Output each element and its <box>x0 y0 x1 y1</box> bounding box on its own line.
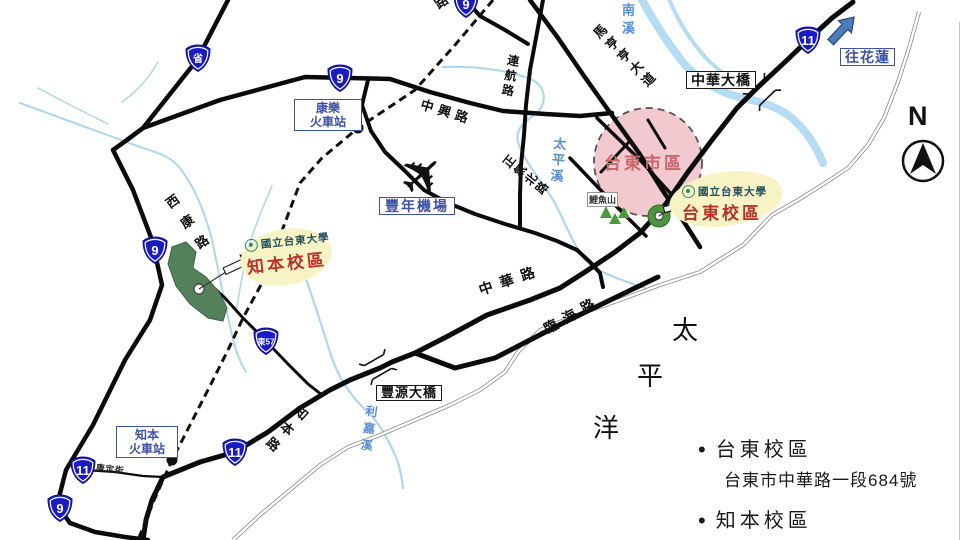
kangle-station-line2: 火車站 <box>299 115 357 129</box>
to-hualien-label: 往花蓮 <box>840 48 895 66</box>
bullet-icon: • <box>698 438 706 462</box>
fengyuan-bridge-label: 豐源大橋 <box>376 385 442 401</box>
river-west-branch2 <box>38 88 108 124</box>
fengnian-airport-label: 豐年機場 <box>379 197 455 215</box>
zhonghua-bridge-label: 中華大橋 <box>686 71 756 89</box>
pacific-ocean-char-3: 洋 <box>593 408 619 445</box>
svg-text:省: 省 <box>192 52 203 65</box>
university-logo-icon <box>682 185 695 198</box>
legend-item-zhiben: • 知本校區 <box>698 509 917 533</box>
svg-text:9: 9 <box>56 501 63 516</box>
svg-text:9: 9 <box>151 243 158 258</box>
campus-address-legend: • 台東校區 台東市中華路一段684號 • 知本校區 <box>698 438 917 533</box>
zhiben-station-line1: 知本 <box>121 428 173 442</box>
river-west-branch1 <box>122 62 158 102</box>
zhiben-station-label: 知本 火車站 <box>116 426 178 458</box>
river-lijia <box>300 262 403 488</box>
hualien-arrow-icon <box>824 11 860 48</box>
taitung-campus-tag: 國立台東大學 台東校區 <box>682 184 767 224</box>
svg-text:9: 9 <box>336 71 343 86</box>
university-logo-icon <box>244 238 258 252</box>
kangle-station-label: 康樂 火車站 <box>294 99 362 131</box>
pacific-ocean-char-1: 太 <box>672 310 698 347</box>
river-west-main <box>20 103 246 372</box>
route-shield-11-zhiben-road: 11 <box>223 439 247 466</box>
svg-text:11: 11 <box>76 463 90 478</box>
route-shield-9-kangle: 9 <box>328 65 352 92</box>
svg-text:11: 11 <box>228 445 242 460</box>
legend-taitung-title: 台東校區 <box>716 438 812 462</box>
taitung-city-label: 台東市區 <box>604 149 684 174</box>
road-linhai <box>415 277 658 368</box>
compass-n-label: N <box>908 101 928 132</box>
svg-text:9: 9 <box>462 0 469 12</box>
pacific-ocean-char-2: 平 <box>637 356 663 393</box>
liyu-mountain-label: 鯉魚山 <box>587 192 618 207</box>
svg-text:東57: 東57 <box>258 337 275 347</box>
taitung-university-access-map: ✈ 省 9 9 9 9 <box>0 0 964 540</box>
zhiben-station-line2: 火車站 <box>121 442 173 456</box>
route-shield-11-kangding: 11 <box>71 457 95 484</box>
route-shield-9-west: 9 <box>143 237 167 264</box>
taitung-campus-name: 台東校區 <box>682 199 767 224</box>
kangle-station-line1: 康樂 <box>299 101 357 115</box>
legend-zhiben-title: 知本校區 <box>716 509 812 533</box>
legend-item-taitung: • 台東校區 <box>698 438 917 462</box>
svg-text:11: 11 <box>801 33 815 48</box>
university-name: 國立台東大學 <box>698 184 767 199</box>
bullet-icon: • <box>698 509 706 533</box>
legend-taitung-address: 台東市中華路一段684號 <box>724 466 917 491</box>
beinan-river-label: 南溪 <box>618 3 637 39</box>
route-shield-9-top: 9 <box>454 0 478 18</box>
